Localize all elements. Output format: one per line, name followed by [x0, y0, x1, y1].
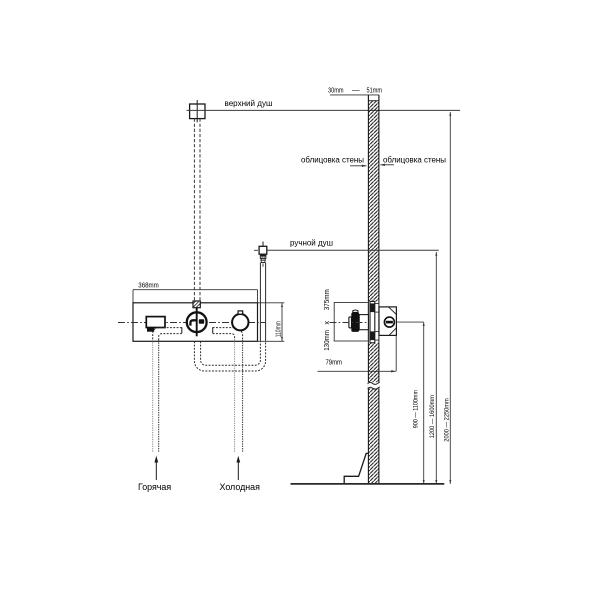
- svg-text:51mm: 51mm: [367, 85, 383, 94]
- svg-text:облицовка стены: облицовка стены: [383, 156, 446, 165]
- svg-text:Холодная: Холодная: [220, 482, 261, 492]
- svg-text:900 — 1100mm: 900 — 1100mm: [412, 390, 419, 429]
- svg-text:—: —: [352, 85, 360, 94]
- svg-text:2000 — 2250mm: 2000 — 2250mm: [443, 398, 450, 442]
- svg-text:Горячая: Горячая: [138, 482, 171, 492]
- svg-text:облицовка стены: облицовка стены: [301, 156, 364, 165]
- svg-text:368mm: 368mm: [138, 280, 159, 289]
- svg-text:верхний душ: верхний душ: [225, 98, 273, 108]
- svg-text:130mm: 130mm: [322, 330, 331, 351]
- svg-text:30mm: 30mm: [328, 85, 344, 94]
- svg-text:1200 — 1600mm: 1200 — 1600mm: [429, 395, 436, 439]
- svg-text:ручной душ: ручной душ: [290, 238, 333, 248]
- svg-text:110mm: 110mm: [274, 321, 283, 337]
- svg-text:79mm: 79mm: [326, 358, 343, 367]
- svg-text:375mm: 375mm: [322, 289, 331, 310]
